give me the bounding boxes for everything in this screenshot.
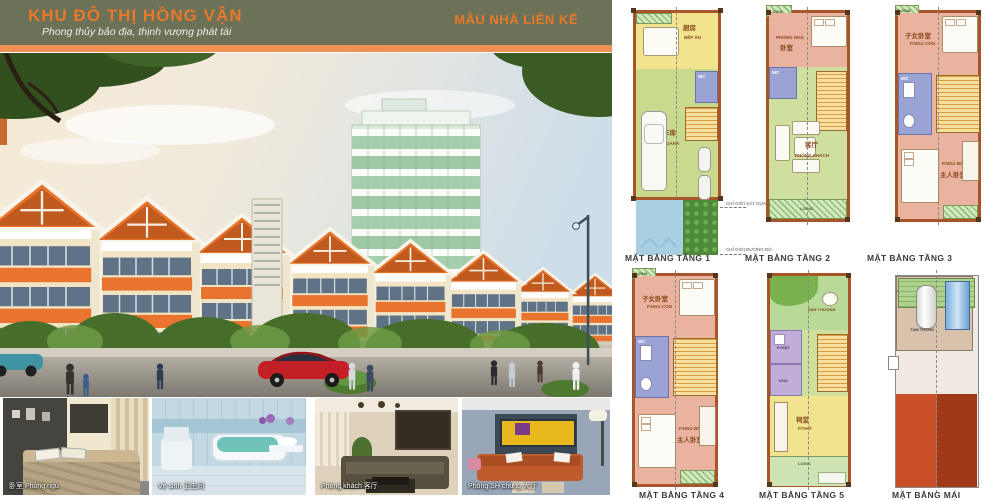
floor-plans-panel: 厨房 BẾP ĂN WC 车库 GARA CHỈ GIỚI — [612, 0, 1000, 500]
building-rendering — [0, 53, 612, 397]
child-bedroom-label-cn: 子女卧室 — [905, 30, 931, 40]
terrace-label: SÂN THƯỢNG — [808, 307, 836, 312]
floor-plan-5: SÂN THƯỢNG P.GIẶT KHO 祠堂 P.THỜ LOGIA — [767, 273, 851, 487]
front-garden — [683, 200, 718, 255]
floor-plan-1: 厨房 BẾP ĂN WC 车库 GARA CHỈ GIỚI — [633, 10, 721, 255]
laundry-label: P.GIẶT — [777, 345, 790, 350]
child-bedroom-label-vn: P.NGỦ CON — [647, 304, 672, 309]
worship-label-vn: P.THỜ — [798, 426, 812, 431]
motorbike-symbol — [698, 147, 711, 172]
water-tank — [916, 285, 937, 329]
photo-living-room: Phòng khách 客厅 — [315, 398, 458, 495]
wc-label: WC — [638, 339, 646, 344]
floor-plan-2-label: MẶT BẰNG TẦNG 2 — [745, 253, 830, 263]
child-bedroom-label-cn: 子女卧室 — [642, 293, 668, 303]
car-symbol — [641, 111, 667, 191]
photo-bathroom: Vệ sinh 卫生间 — [152, 398, 306, 495]
boundary-build-label: CHỈ GIỚI XÂY DỰNG — [726, 201, 770, 206]
header: KHU ĐÔ THỊ HỒNG VẬN Phong thủy bảo địa, … — [0, 0, 612, 45]
solar-tank — [945, 281, 970, 330]
floor-plan-2: LOGIA PHÒNG NGỦ 卧室 WC 客厅 PHÒNG KHÁCH LOG… — [766, 10, 850, 222]
tum-label: TUM THANG — [910, 327, 934, 332]
kitchen-label-vn: BẾP ĂN — [684, 35, 701, 40]
child-bedroom-label-vn: P.NGỦ CON — [910, 41, 935, 46]
photo-caption-bathroom: Vệ sinh 卫生间 — [158, 481, 204, 491]
floor-plan-3-label: MẶT BẰNG TẦNG 3 — [867, 253, 952, 263]
wc-label: WC — [698, 74, 706, 79]
floor-plan-1-label: MẶT BẰNG TẦNG 1 — [625, 253, 710, 263]
floor-plan-4-label: MẶT BẰNG TẦNG 4 — [639, 490, 724, 500]
photo-caption-living: Phòng khách 客厅 — [321, 481, 378, 491]
roof-plan: TUM THANG — [895, 275, 979, 488]
kitchen-label-cn: 厨房 — [683, 22, 696, 32]
photo-caption-bedroom: 卧室 Phòng ngủ — [9, 481, 59, 491]
header-right-title: MẪU NHÀ LIÊN KẾ — [454, 12, 578, 27]
divider-bar — [0, 45, 612, 52]
page-subtitle: Phong thủy bảo địa, thịnh vượng phát tài — [42, 26, 231, 38]
roof-plan-label: MẶT BẰNG MÁI — [892, 490, 961, 500]
living-label-vn: PHÒNG KHÁCH — [795, 153, 829, 158]
floor-plan-3: LOGIA 子女卧室 P.NGỦ CON WC P.NGỦ BỐ MẸ 主人卧室 — [895, 10, 981, 222]
brochure-page: KHU ĐÔ THỊ HỒNG VẬN Phong thủy bảo địa, … — [0, 0, 1000, 500]
photo-caption-family: Phòng SH chung 大厅 — [468, 481, 537, 491]
photo-family-room: Phòng SH chung 大厅 — [462, 398, 610, 495]
bedroom-label-vn: PHÒNG NGỦ — [776, 35, 804, 40]
garage-label-vn: GARA — [666, 141, 679, 146]
photo-bedroom: 卧室 Phòng ngủ — [3, 398, 149, 495]
roof-slope-left — [896, 394, 937, 487]
boundary-red-label: CHỈ GIỚI ĐƯỜNG ĐỎ — [726, 247, 772, 252]
floor-plan-4: LOGIA 子女卧室 P.NGỦ CON WC P.NGỦ BỐ MẸ 主人卧室 — [632, 273, 718, 487]
wc-label: WC — [901, 76, 909, 81]
wc-label: WC — [772, 70, 780, 75]
bedroom-label-cn: 卧室 — [780, 42, 793, 52]
roof-slope-right — [937, 394, 977, 487]
storage-label: KHO — [779, 378, 788, 383]
page-title: KHU ĐÔ THỊ HỒNG VẬN — [28, 6, 243, 26]
motorbike-symbol — [698, 175, 711, 200]
floor-plan-5-label: MẶT BẰNG TẦNG 5 — [759, 490, 844, 500]
